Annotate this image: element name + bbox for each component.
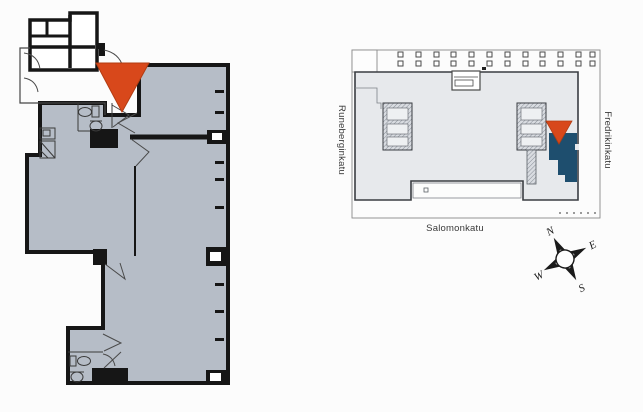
unit-window-notch <box>575 144 579 150</box>
utility-rooms <box>30 13 97 70</box>
compass-letter-e: E <box>586 238 599 252</box>
dotted-line <box>559 212 596 214</box>
floorplan-graphic: Runeberginkatu Fredrikinkatu Salomonkatu… <box>0 0 643 412</box>
street-label-fredrikinkatu: Fredrikinkatu <box>602 111 613 169</box>
apartment-floor-plan <box>20 13 228 384</box>
site-plan: Runeberginkatu Fredrikinkatu Salomonkatu… <box>336 50 614 311</box>
compass-letter-s: S <box>577 282 588 295</box>
adjacent-structure <box>352 50 377 72</box>
roof-columns <box>398 52 595 66</box>
compass-letter-n: N <box>544 224 558 239</box>
street-label-runeberginkatu: Runeberginkatu <box>336 105 347 175</box>
stair-core-left <box>383 103 412 150</box>
floor-area <box>27 65 228 383</box>
street-label-salomonkatu: Salomonkatu <box>426 223 484 234</box>
compass-letter-w: W <box>532 268 546 283</box>
compass-rose-icon: N E S W <box>516 210 614 311</box>
floorplan-page: Runeberginkatu Fredrikinkatu Salomonkatu… <box>0 0 643 412</box>
courtyard <box>413 183 521 198</box>
